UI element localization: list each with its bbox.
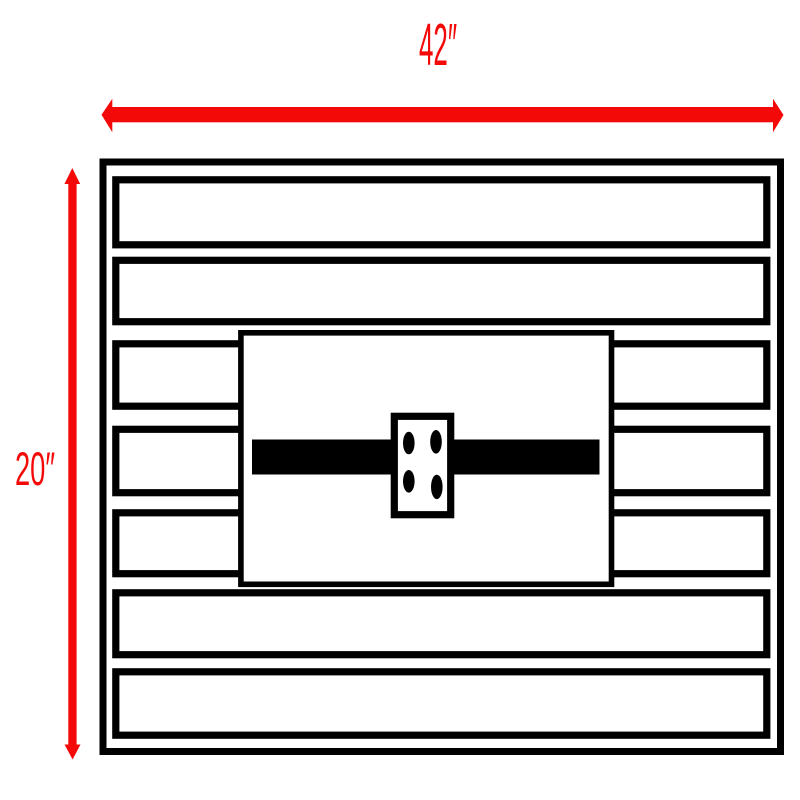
svg-text:42″: 42″ — [419, 12, 457, 78]
svg-text:20″: 20″ — [15, 443, 55, 496]
